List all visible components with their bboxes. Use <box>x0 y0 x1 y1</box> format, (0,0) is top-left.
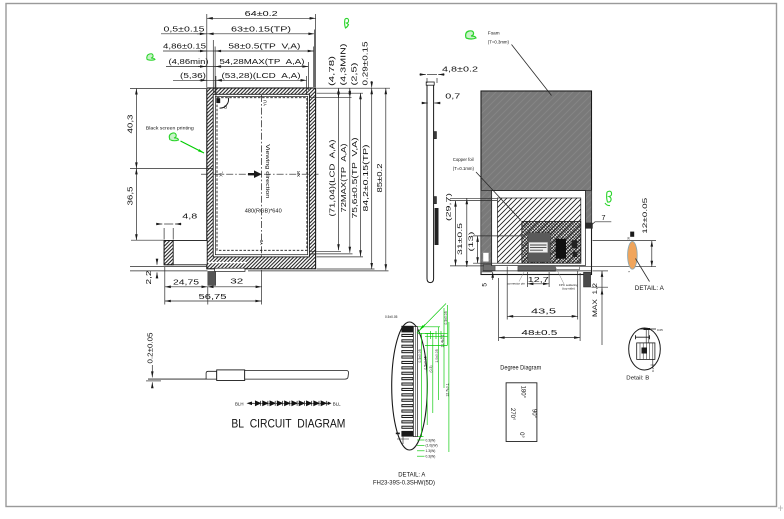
svg-text:(4,78): (4,78) <box>329 56 336 86</box>
svg-text:Black screen printing: Black screen printing <box>146 126 195 131</box>
svg-text:12,7: 12,7 <box>528 275 549 284</box>
svg-text:4,8: 4,8 <box>182 212 197 221</box>
svg-text:180°: 180° <box>519 386 525 399</box>
svg-text:Detail: B: Detail: B <box>626 376 649 382</box>
svg-text:0.2±0.05: 0.2±0.05 <box>148 332 155 363</box>
svg-text:1.0±0.05: 1.0±0.05 <box>435 349 439 362</box>
svg-text:39: 39 <box>627 236 631 240</box>
svg-text:72MAX(TP A,A): 72MAX(TP A,A) <box>339 144 348 213</box>
svg-text:0.5±0.05: 0.5±0.05 <box>385 315 398 319</box>
svg-text:(T=0.1mm): (T=0.1mm) <box>453 166 475 171</box>
svg-text:31±0.5: 31±0.5 <box>457 222 464 255</box>
svg-text:DETAIL: A: DETAIL: A <box>635 285 665 292</box>
svg-text:24,75: 24,75 <box>173 277 199 286</box>
svg-text:DETAIL: A: DETAIL: A <box>398 472 426 479</box>
svg-text:64±0.2: 64±0.2 <box>245 9 278 18</box>
svg-text:(T=0.3mm): (T=0.3mm) <box>488 40 510 45</box>
svg-text:(4,86min): (4,86min) <box>169 57 210 66</box>
svg-text:54,28MAX(TP A,A): 54,28MAX(TP A,A) <box>220 57 306 66</box>
svg-text:84,2±0.15(TP): 84,2±0.15(TP) <box>361 145 370 212</box>
svg-text:75,6±0.5(TP V,A): 75,6±0.5(TP V,A) <box>350 138 359 219</box>
svg-text:0.3(W): 0.3(W) <box>426 455 436 459</box>
svg-text:YU: YU <box>263 100 268 106</box>
svg-text:(1.0)(W): (1.0)(W) <box>426 444 438 448</box>
svg-text:BLL: BLL <box>333 402 341 407</box>
svg-text:(71,04)(LCD A,A): (71,04)(LCD A,A) <box>328 140 337 217</box>
svg-text:(top side): (top side) <box>562 286 575 290</box>
svg-text:Foam: Foam <box>488 31 500 36</box>
svg-text:5: 5 <box>481 283 488 287</box>
svg-text:85±0.2: 85±0.2 <box>375 164 384 193</box>
svg-text:BLH: BLH <box>235 402 244 407</box>
svg-text:0.3±0.05: 0.3±0.05 <box>418 349 422 362</box>
svg-text:(2,5): (2,5) <box>352 63 359 86</box>
svg-text:XL: XL <box>218 171 223 177</box>
svg-text:48±0.5: 48±0.5 <box>521 328 557 337</box>
svg-text:0.3±0.05: 0.3±0.05 <box>444 311 448 324</box>
svg-text:40,3: 40,3 <box>125 115 134 134</box>
svg-text:XR: XR <box>296 171 301 177</box>
svg-text:1.3(W): 1.3(W) <box>426 449 436 453</box>
svg-text:12.7±0.1: 12.7±0.1 <box>445 383 449 396</box>
svg-text:Degree Diagram: Degree Diagram <box>500 366 541 372</box>
svg-text:7: 7 <box>602 213 606 222</box>
svg-text:270°: 270° <box>509 408 515 421</box>
svg-text:B: B <box>224 105 227 110</box>
svg-text:0.05: 0.05 <box>657 328 663 332</box>
svg-text:36,5: 36,5 <box>125 187 134 206</box>
svg-text:4,86±0.15: 4,86±0.15 <box>163 42 206 51</box>
svg-text:(29,7): (29,7) <box>446 193 453 221</box>
svg-text:0°: 0° <box>518 432 524 438</box>
svg-text:63±0.15(TP): 63±0.15(TP) <box>231 24 292 33</box>
svg-text:Y0: Y0 <box>259 239 264 245</box>
svg-text:58±0.5(TP V,A): 58±0.5(TP V,A) <box>228 42 301 51</box>
svg-text:(5,36): (5,36) <box>180 71 207 80</box>
svg-text:480(RGB)*640: 480(RGB)*640 <box>245 208 282 214</box>
svg-text:connector pin: connector pin <box>507 282 525 286</box>
svg-text:0,5±0.15: 0,5±0.15 <box>164 24 205 33</box>
svg-text:BL CIRCUIT DIAGRAM: BL CIRCUIT DIAGRAM <box>231 416 345 430</box>
svg-text:0.5±0.05: 0.5±0.05 <box>424 356 428 369</box>
svg-text:2,2: 2,2 <box>144 271 153 285</box>
svg-text:0.29±0.15: 0.29±0.15 <box>363 41 370 85</box>
svg-text:12±0.05: 12±0.05 <box>642 197 649 233</box>
svg-text:0.1: 0.1 <box>651 367 655 372</box>
svg-text:(53,28)(LCD A,A): (53,28)(LCD A,A) <box>222 71 302 80</box>
svg-text:4,8±0.2: 4,8±0.2 <box>442 65 478 74</box>
svg-text:Copper foil: Copper foil <box>453 157 474 162</box>
svg-text:(4,3MIN): (4,3MIN) <box>340 44 347 86</box>
svg-text:Viewing direction: Viewing direction <box>264 144 270 198</box>
svg-text:56,75: 56,75 <box>199 292 227 301</box>
svg-text:0,7: 0,7 <box>445 92 460 101</box>
svg-text:0.3(W): 0.3(W) <box>426 438 436 442</box>
svg-text:(13): (13) <box>468 232 475 252</box>
svg-text:MAX 1,2: MAX 1,2 <box>592 283 599 317</box>
svg-text:(0.3): (0.3) <box>429 366 433 373</box>
svg-text:90°: 90° <box>531 409 537 419</box>
svg-text:32: 32 <box>230 276 243 285</box>
svg-text:FH23-39S-0.3SHW(5D): FH23-39S-0.3SHW(5D) <box>373 480 435 487</box>
svg-text:43,5: 43,5 <box>531 307 556 316</box>
